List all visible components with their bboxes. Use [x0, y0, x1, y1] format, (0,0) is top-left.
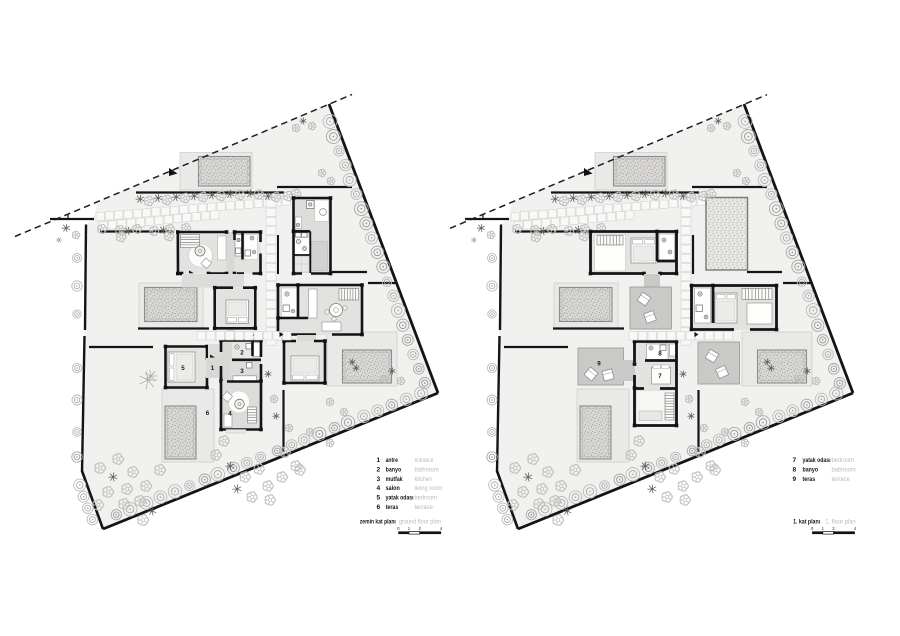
- svg-text:3: 3: [240, 368, 244, 375]
- svg-text:living room: living room: [415, 485, 443, 492]
- svg-text:2: 2: [376, 466, 380, 473]
- svg-text:banyo: banyo: [803, 466, 819, 473]
- svg-text:yatak odası: yatak odası: [386, 495, 414, 502]
- svg-text:1. kat planı: 1. kat planı: [793, 519, 820, 526]
- svg-text:teras: teras: [803, 476, 816, 483]
- svg-text:bathroom: bathroom: [832, 466, 856, 473]
- svg-text:1. floor plan: 1. floor plan: [825, 519, 856, 526]
- svg-text:zemin kat planı: zemin kat planı: [360, 519, 396, 526]
- svg-text:bedroom: bedroom: [832, 457, 855, 464]
- svg-text:antre: antre: [386, 457, 399, 464]
- svg-text:7: 7: [658, 373, 662, 380]
- svg-text:1: 1: [376, 457, 380, 464]
- svg-text:bedroom: bedroom: [415, 495, 438, 502]
- svg-text:4: 4: [376, 485, 380, 492]
- svg-text:banyo: banyo: [386, 466, 402, 473]
- svg-text:mutfak: mutfak: [386, 476, 403, 483]
- svg-text:bathroom: bathroom: [415, 466, 439, 473]
- svg-text:yatak odası: yatak odası: [803, 457, 831, 464]
- svg-text:ground floor plan: ground floor plan: [399, 519, 441, 526]
- svg-text:2: 2: [240, 350, 244, 357]
- svg-text:teras: teras: [386, 504, 399, 511]
- svg-text:kitchen: kitchen: [415, 476, 433, 483]
- svg-text:6: 6: [376, 504, 380, 511]
- svg-text:8: 8: [792, 466, 796, 473]
- svg-text:salon: salon: [386, 485, 400, 492]
- svg-text:9: 9: [792, 476, 796, 483]
- svg-text:1: 1: [211, 365, 215, 372]
- svg-text:9: 9: [597, 361, 601, 368]
- svg-text:4: 4: [228, 411, 232, 418]
- svg-text:terrace: terrace: [832, 476, 851, 483]
- svg-text:entrance: entrance: [415, 457, 434, 464]
- svg-text:5: 5: [181, 365, 185, 372]
- svg-text:5: 5: [376, 495, 380, 502]
- svg-text:terrace: terrace: [415, 504, 434, 511]
- svg-text:7: 7: [792, 457, 796, 464]
- svg-text:6: 6: [206, 410, 210, 417]
- svg-text:8: 8: [658, 351, 662, 358]
- svg-text:3: 3: [376, 476, 380, 483]
